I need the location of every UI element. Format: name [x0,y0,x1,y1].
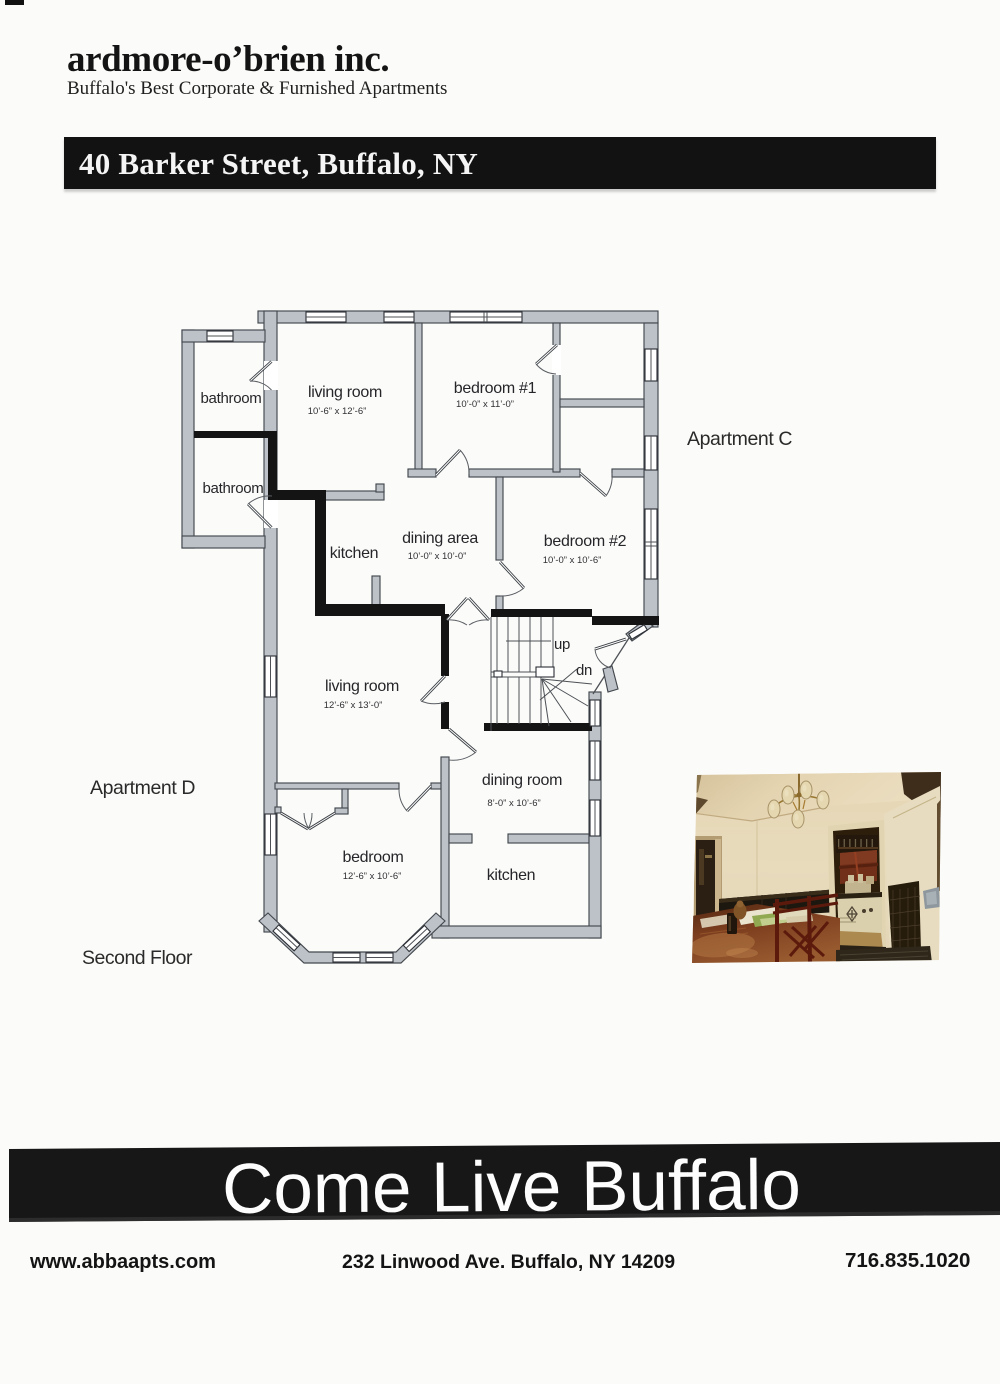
svg-text:12’-6” x 13’-0”: 12’-6” x 13’-0” [324,700,383,711]
svg-text:dining area: dining area [402,530,478,547]
svg-text:Come Live Buffalo: Come Live Buffalo [222,1146,801,1229]
svg-text:kitchen: kitchen [487,867,536,884]
svg-text:up: up [554,636,570,653]
svg-text:bedroom: bedroom [342,849,403,866]
svg-text:10’-0” x 11’-0”: 10’-0” x 11’-0” [456,399,514,410]
svg-text:dining room: dining room [482,772,562,789]
svg-text:bathroom: bathroom [203,480,264,497]
svg-text:living room: living room [325,678,399,695]
svg-text:bathroom: bathroom [201,390,262,407]
svg-text:bedroom #1: bedroom #1 [454,380,537,397]
svg-text:8’-0” x 10’-6”: 8’-0” x 10’-6” [487,798,540,809]
svg-text:10’-0” x 10’-0”: 10’-0” x 10’-0” [408,551,467,562]
svg-text:10’-6” x 12’-6”: 10’-6” x 12’-6” [308,406,367,417]
svg-text:kitchen: kitchen [330,545,379,562]
svg-text:dn: dn [576,662,592,679]
svg-text:12’-6” x 10’-6”: 12’-6” x 10’-6” [343,871,402,882]
svg-text:10’-0” x 10’-6”: 10’-0” x 10’-6” [543,555,602,566]
svg-text:bedroom #2: bedroom #2 [544,533,627,550]
svg-text:living room: living room [308,384,382,401]
